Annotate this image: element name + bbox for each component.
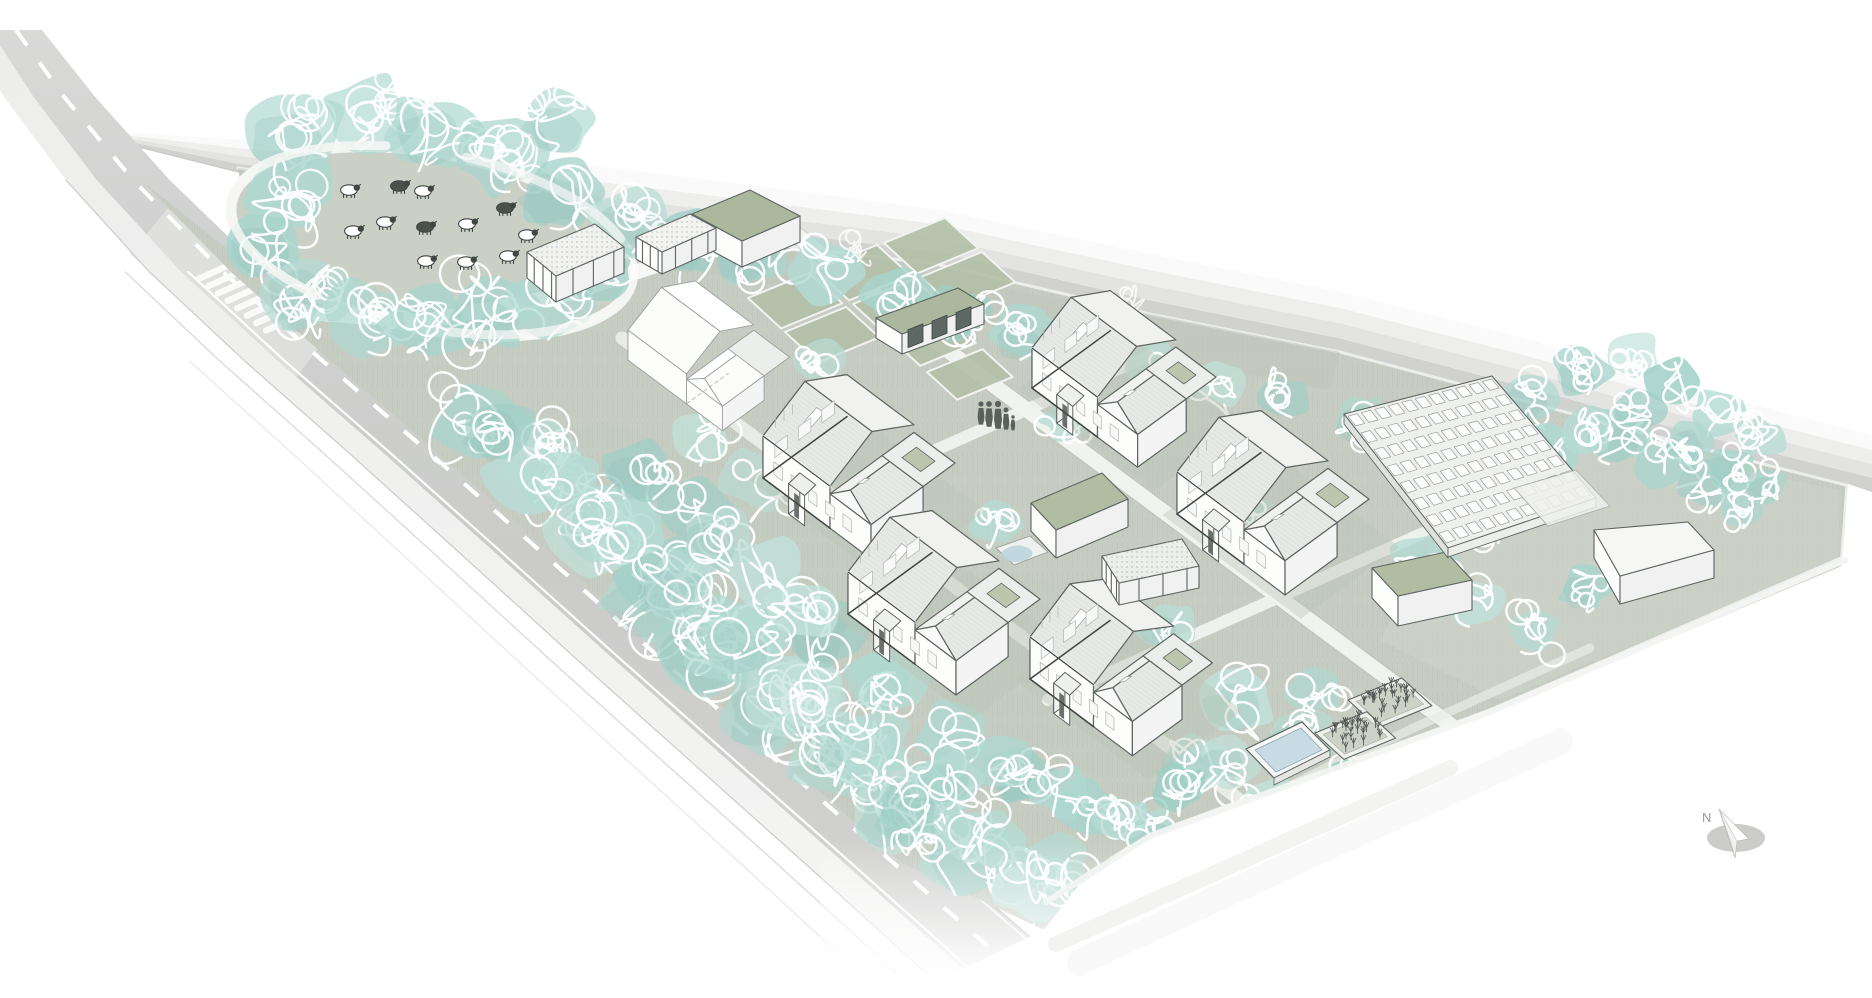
svg-text:N: N [1702, 810, 1711, 825]
